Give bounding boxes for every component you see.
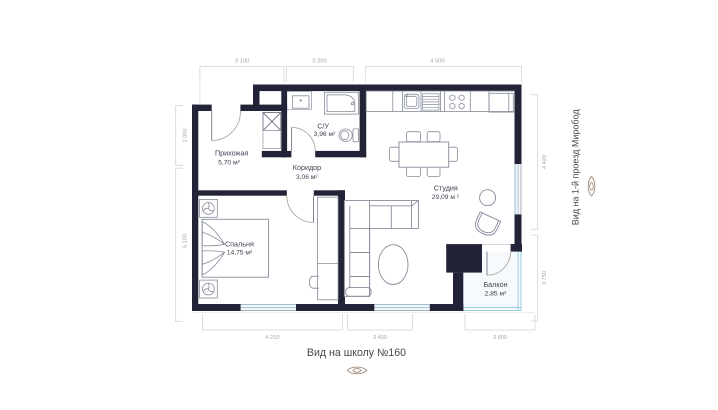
svg-text:2,85 м²: 2,85 м²: [485, 291, 507, 298]
svg-text:4 420: 4 420: [542, 155, 548, 169]
svg-text:Прихожая: Прихожая: [215, 148, 248, 157]
svg-text:Балкон: Балкон: [483, 280, 507, 289]
svg-text:4 500: 4 500: [430, 59, 445, 65]
svg-text:Вид на школу №160: Вид на школу №160: [307, 347, 406, 359]
svg-text:Вид на 1-й проезд Миробод: Вид на 1-й проезд Миробод: [571, 109, 581, 226]
svg-text:14,75 м²: 14,75 м²: [227, 249, 253, 256]
svg-text:3 100: 3 100: [235, 59, 250, 65]
svg-text:3 400: 3 400: [373, 335, 387, 341]
svg-text:3,06 м²: 3,06 м²: [296, 174, 318, 181]
svg-text:3,96 м²: 3,96 м²: [314, 131, 336, 138]
svg-text:Спальня: Спальня: [225, 239, 254, 248]
svg-text:Студия: Студия: [434, 183, 458, 192]
svg-text:3 900: 3 900: [493, 335, 507, 341]
svg-text:Коридор: Коридор: [293, 163, 321, 172]
svg-text:3 200: 3 200: [312, 59, 327, 65]
svg-text:С/У: С/У: [317, 122, 329, 131]
svg-text:29,09 м ²: 29,09 м ²: [432, 194, 460, 201]
svg-text:3 750: 3 750: [542, 271, 548, 285]
svg-text:2 000: 2 000: [182, 129, 188, 143]
svg-text:5,70 м²: 5,70 м²: [218, 159, 240, 166]
svg-text:4 210: 4 210: [266, 335, 280, 341]
svg-text:5 100: 5 100: [182, 234, 188, 248]
